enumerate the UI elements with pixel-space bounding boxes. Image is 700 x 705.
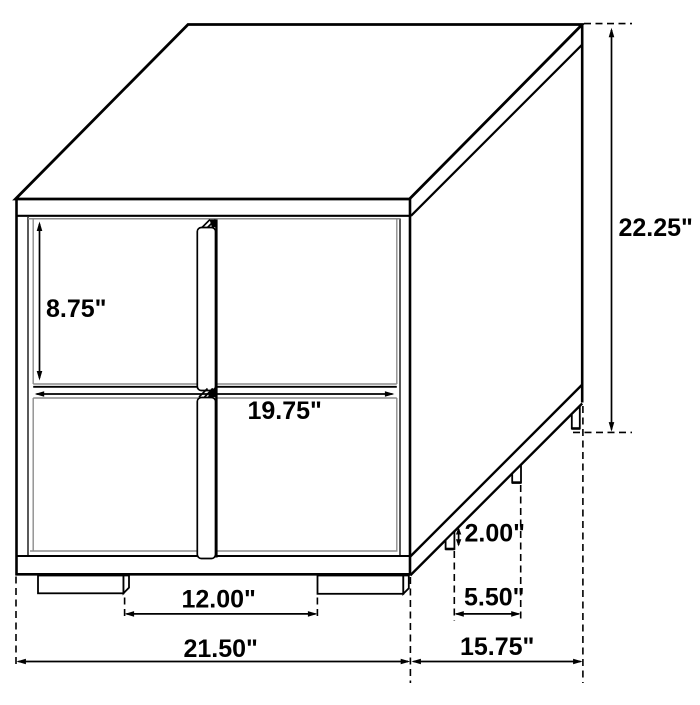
svg-text:15.75": 15.75" (460, 633, 534, 661)
svg-text:5.50": 5.50" (464, 584, 525, 612)
svg-text:19.75": 19.75" (248, 397, 322, 425)
svg-text:12.00": 12.00" (182, 586, 256, 614)
svg-text:22.25": 22.25" (619, 214, 693, 242)
svg-text:21.50": 21.50" (184, 635, 258, 663)
svg-text:8.75": 8.75" (46, 295, 107, 323)
svg-text:2.00": 2.00" (465, 520, 526, 548)
